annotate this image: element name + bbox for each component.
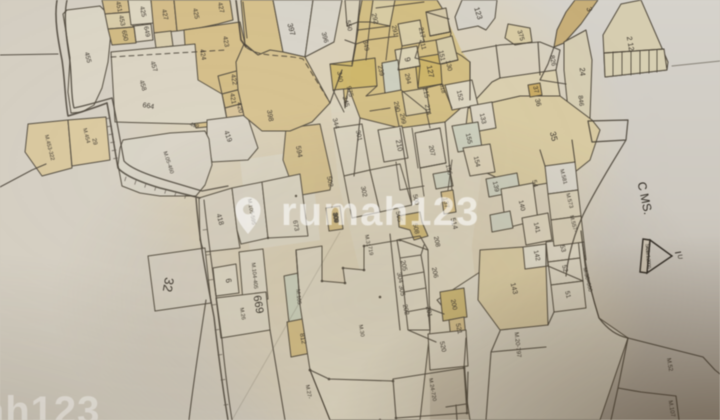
svg-text:ah123: ah123 — [0, 389, 100, 420]
svg-text:rumah123: rumah123 — [281, 190, 480, 234]
